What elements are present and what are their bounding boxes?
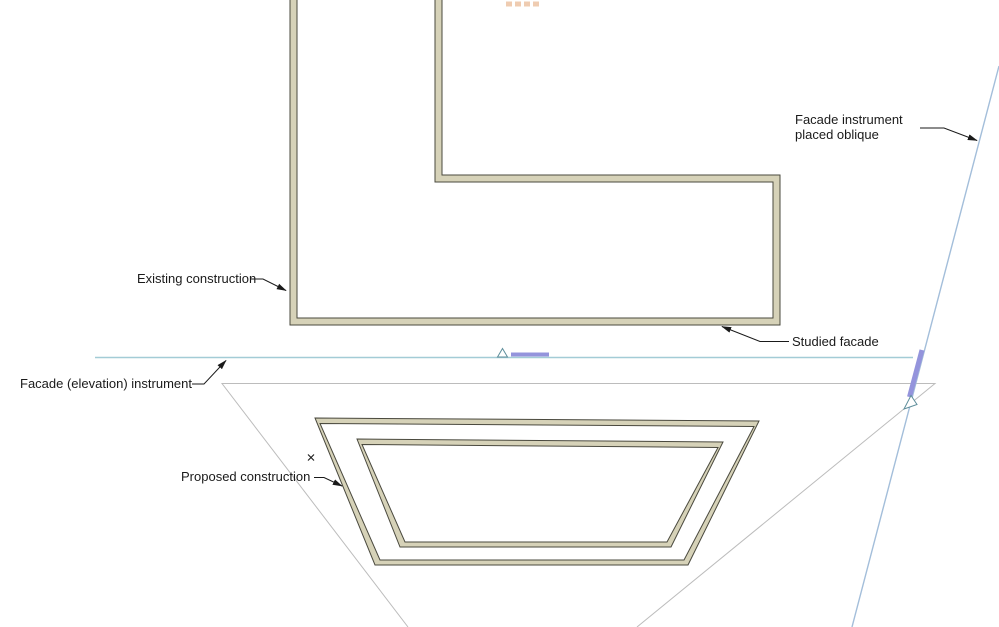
leader-existing-construction	[251, 279, 286, 291]
existing-building-walls[interactable]	[290, 0, 780, 325]
proposed-building-inner-wall[interactable]	[357, 439, 723, 547]
label-proposed-construction[interactable]: Proposed construction	[181, 469, 310, 484]
leader-proposed-construction	[314, 478, 342, 487]
cross-reference-icon	[308, 455, 314, 461]
leader-facade-oblique	[920, 128, 977, 141]
leader-facade-elevation	[192, 361, 226, 385]
label-facade-instrument-oblique[interactable]: Facade instrument placed oblique	[795, 112, 907, 142]
elevation-marker-triangle-icon[interactable]	[498, 349, 508, 358]
drawing-area	[0, 0, 999, 627]
cad-canvas: { "view": { "type": "cad-floor-plan", "d…	[0, 0, 999, 627]
leader-studied-facade	[722, 327, 789, 342]
label-facade-elevation-instrument[interactable]: Facade (elevation) instrument	[20, 376, 192, 391]
label-studied-facade[interactable]: Studied facade	[792, 334, 879, 349]
label-existing-construction[interactable]: Existing construction	[137, 271, 256, 286]
oblique-marker-triangle-icon[interactable]	[904, 396, 917, 410]
